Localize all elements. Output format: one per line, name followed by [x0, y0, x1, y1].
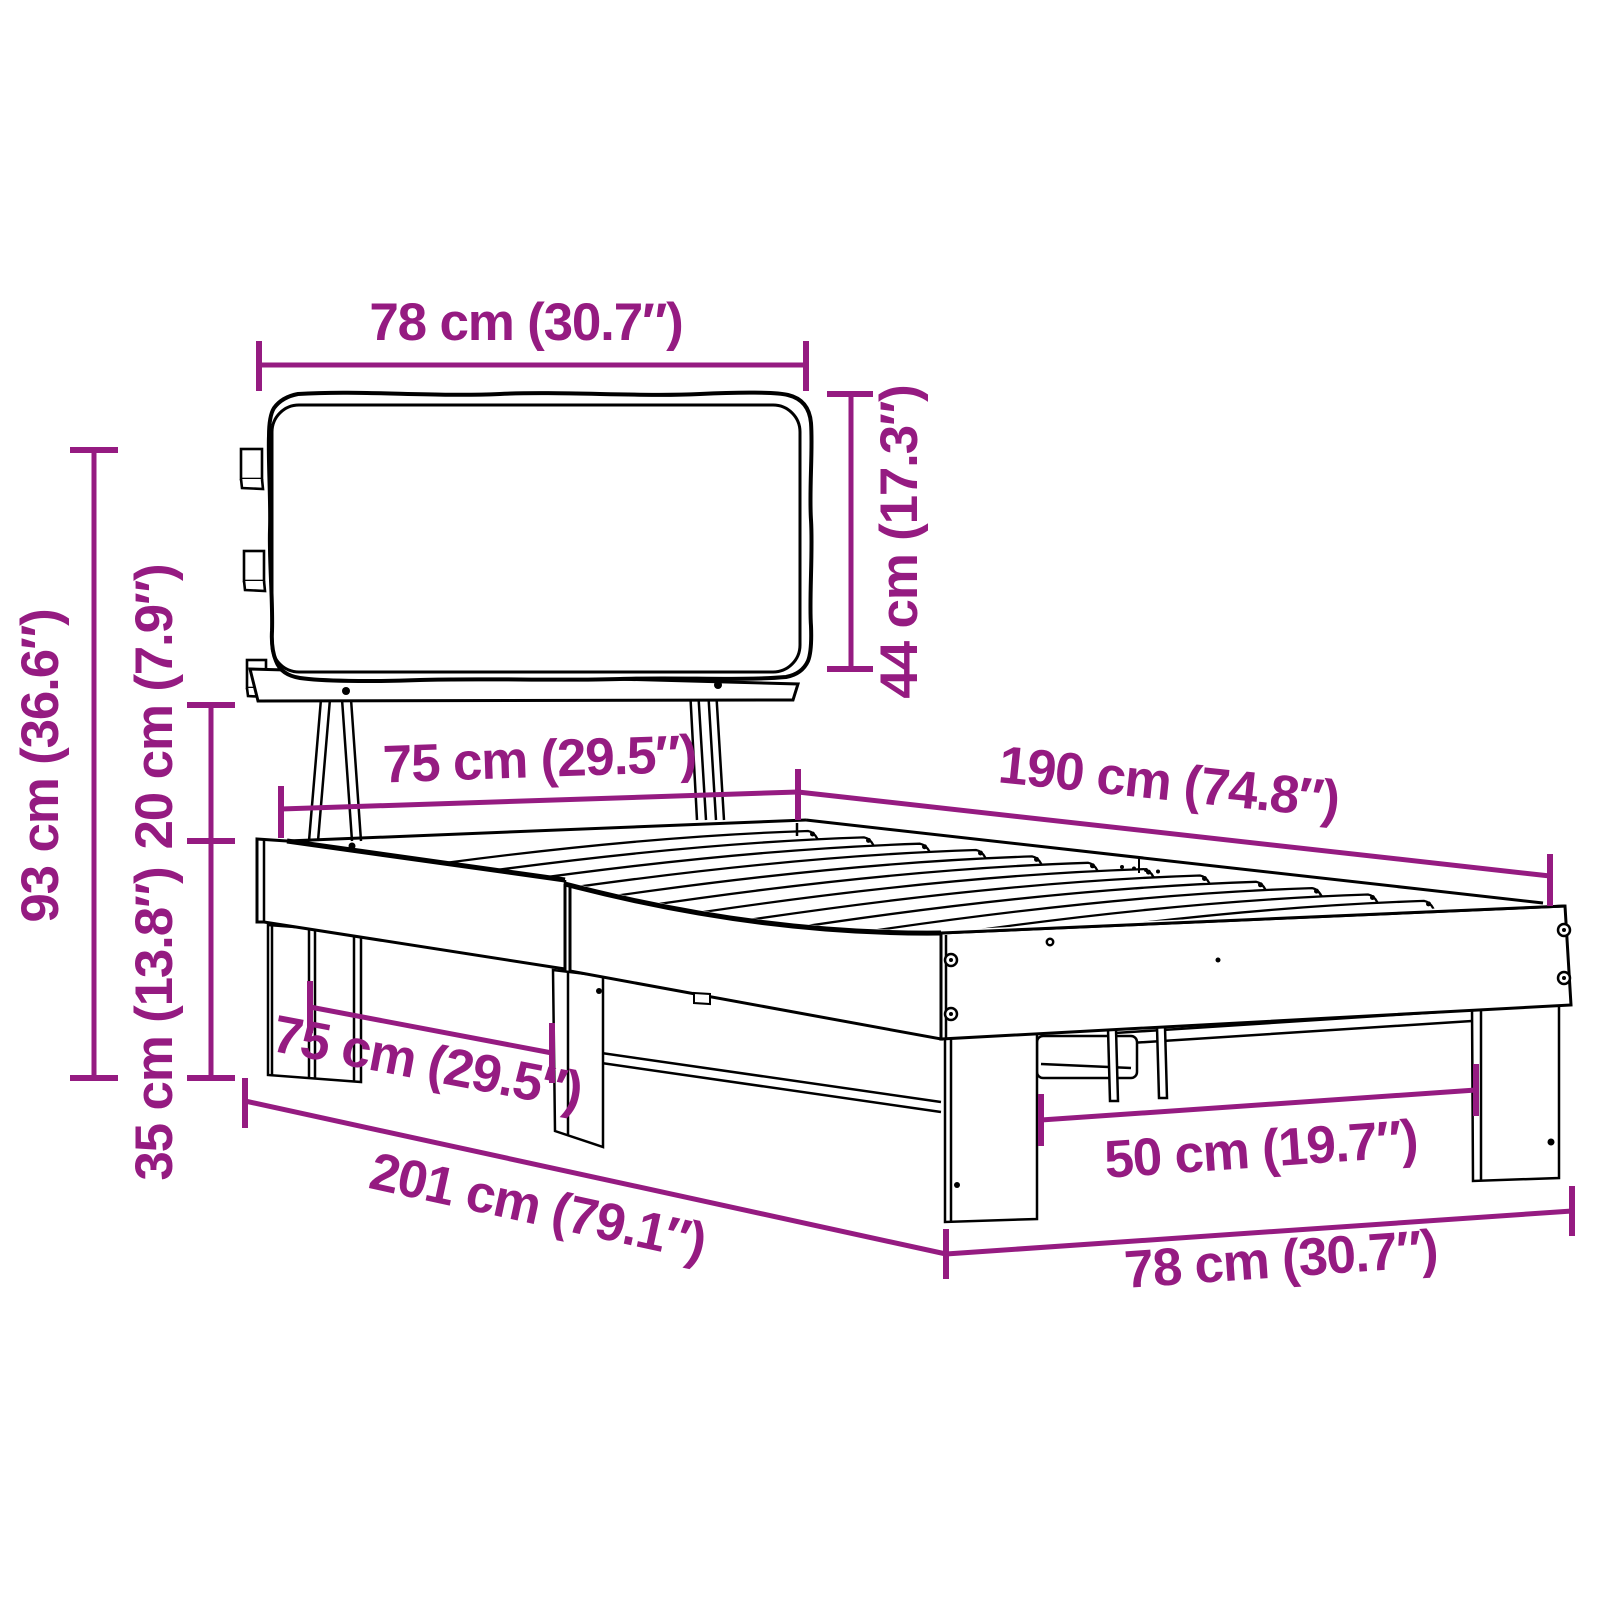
- svg-text:35 cm (13.8″): 35 cm (13.8″): [125, 867, 184, 1180]
- svg-text:44 cm (17.3″): 44 cm (17.3″): [870, 385, 929, 698]
- svg-text:78 cm (30.7″): 78 cm (30.7″): [369, 293, 682, 352]
- svg-text:75 cm (29.5″): 75 cm (29.5″): [382, 725, 697, 795]
- svg-text:20 cm (7.9″): 20 cm (7.9″): [125, 565, 184, 850]
- svg-text:93 cm (36.6″): 93 cm (36.6″): [11, 609, 70, 922]
